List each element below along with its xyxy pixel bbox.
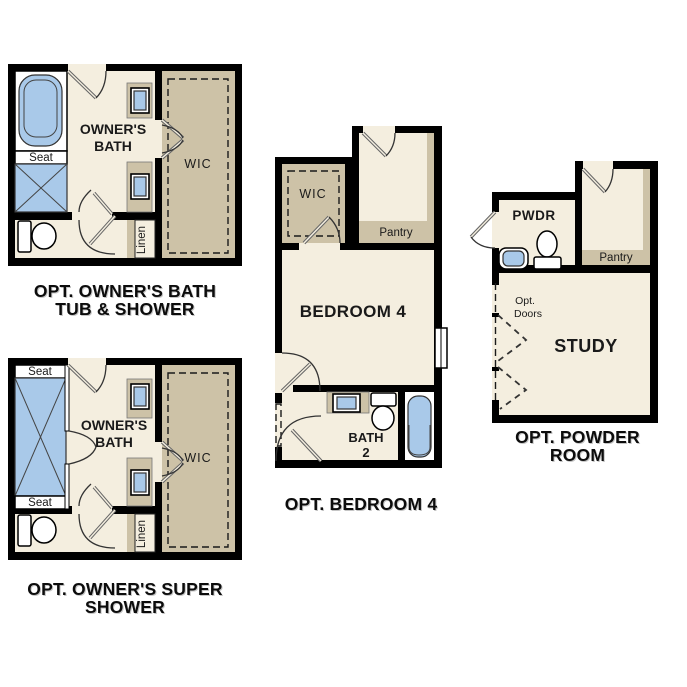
- seat-bottom-label: Seat: [28, 497, 52, 509]
- toilet-icon: [18, 515, 56, 546]
- toilet-icon: [18, 221, 56, 252]
- owners-bath-label-1: OWNER'S: [81, 417, 147, 433]
- vanity-sink-icon: [327, 392, 369, 413]
- tub-icon: [405, 392, 434, 460]
- linen-label: Linen: [136, 520, 148, 548]
- pantry-label: Pantry: [599, 252, 632, 264]
- tub-icon: [15, 71, 67, 151]
- plan-owners-bath-tub-shower: OWNER'S BATH Seat WIC Linen: [8, 64, 242, 266]
- caption-owners-bath: OPT. OWNER'S BATH TUB & SHOWER: [8, 282, 242, 318]
- pwdr-door-arc-icon: [471, 212, 495, 248]
- plan-owners-super-shower: OWNER'S BATH Seat Seat WIC Linen: [8, 358, 242, 560]
- wic-label: WIC: [184, 157, 211, 171]
- opt-doors-label-1: Opt.: [515, 295, 535, 307]
- bedroom4-label: BEDROOM 4: [300, 302, 407, 321]
- wic-label: WIC: [299, 187, 326, 201]
- opt-doors-label-2: Doors: [514, 308, 542, 320]
- caption-line: SHOWER: [8, 598, 242, 616]
- caption-line: TUB & SHOWER: [8, 300, 242, 318]
- linen-label: Linen: [136, 226, 148, 254]
- window-icon: [435, 328, 447, 368]
- vanity-sink-bottom-icon: [127, 458, 152, 506]
- toilet-icon: [371, 393, 396, 430]
- caption-powder-room: OPT. POWDER ROOM: [490, 428, 665, 464]
- pedestal-sink-icon: [499, 248, 528, 269]
- owners-bath-label-2: BATH: [95, 434, 133, 450]
- caption-line: OPT. POWDER ROOM: [490, 428, 665, 464]
- plan-bedroom-4: BEDROOM 4 WIC Pantry BATH 2: [273, 125, 449, 473]
- vanity-sink-top-icon: [127, 83, 152, 118]
- caption-bedroom-4: OPT. BEDROOM 4: [273, 495, 449, 513]
- walls: [492, 161, 658, 423]
- seat-label: Seat: [29, 152, 53, 164]
- owners-bath-label-2: BATH: [94, 138, 132, 154]
- bath2-label-2: 2: [362, 445, 369, 460]
- pantry-label: Pantry: [379, 227, 412, 239]
- study-label: STUDY: [554, 336, 618, 356]
- caption-super-shower: OPT. OWNER'S SUPER SHOWER: [8, 580, 242, 616]
- caption-line: OPT. OWNER'S SUPER: [8, 580, 242, 598]
- plan-powder-room: PWDR Pantry STUDY Opt. Doors: [460, 155, 665, 425]
- pwdr-label: PWDR: [512, 208, 555, 223]
- caption-line: OPT. BEDROOM 4: [273, 495, 449, 513]
- floorplan-options-sheet: OWNER'S BATH Seat WIC Linen OPT. OWNER'S…: [0, 0, 687, 687]
- seat-top-label: Seat: [28, 366, 52, 378]
- super-shower-icon: [15, 378, 66, 496]
- wic-label: WIC: [184, 451, 211, 465]
- vanity-sink-top-icon: [127, 379, 152, 418]
- owners-bath-label-1: OWNER'S: [80, 121, 146, 137]
- shower-icon: [15, 164, 67, 212]
- bath2-label-1: BATH: [348, 430, 383, 445]
- vanity-sink-bottom-icon: [127, 162, 152, 212]
- caption-line: OPT. OWNER'S BATH: [8, 282, 242, 300]
